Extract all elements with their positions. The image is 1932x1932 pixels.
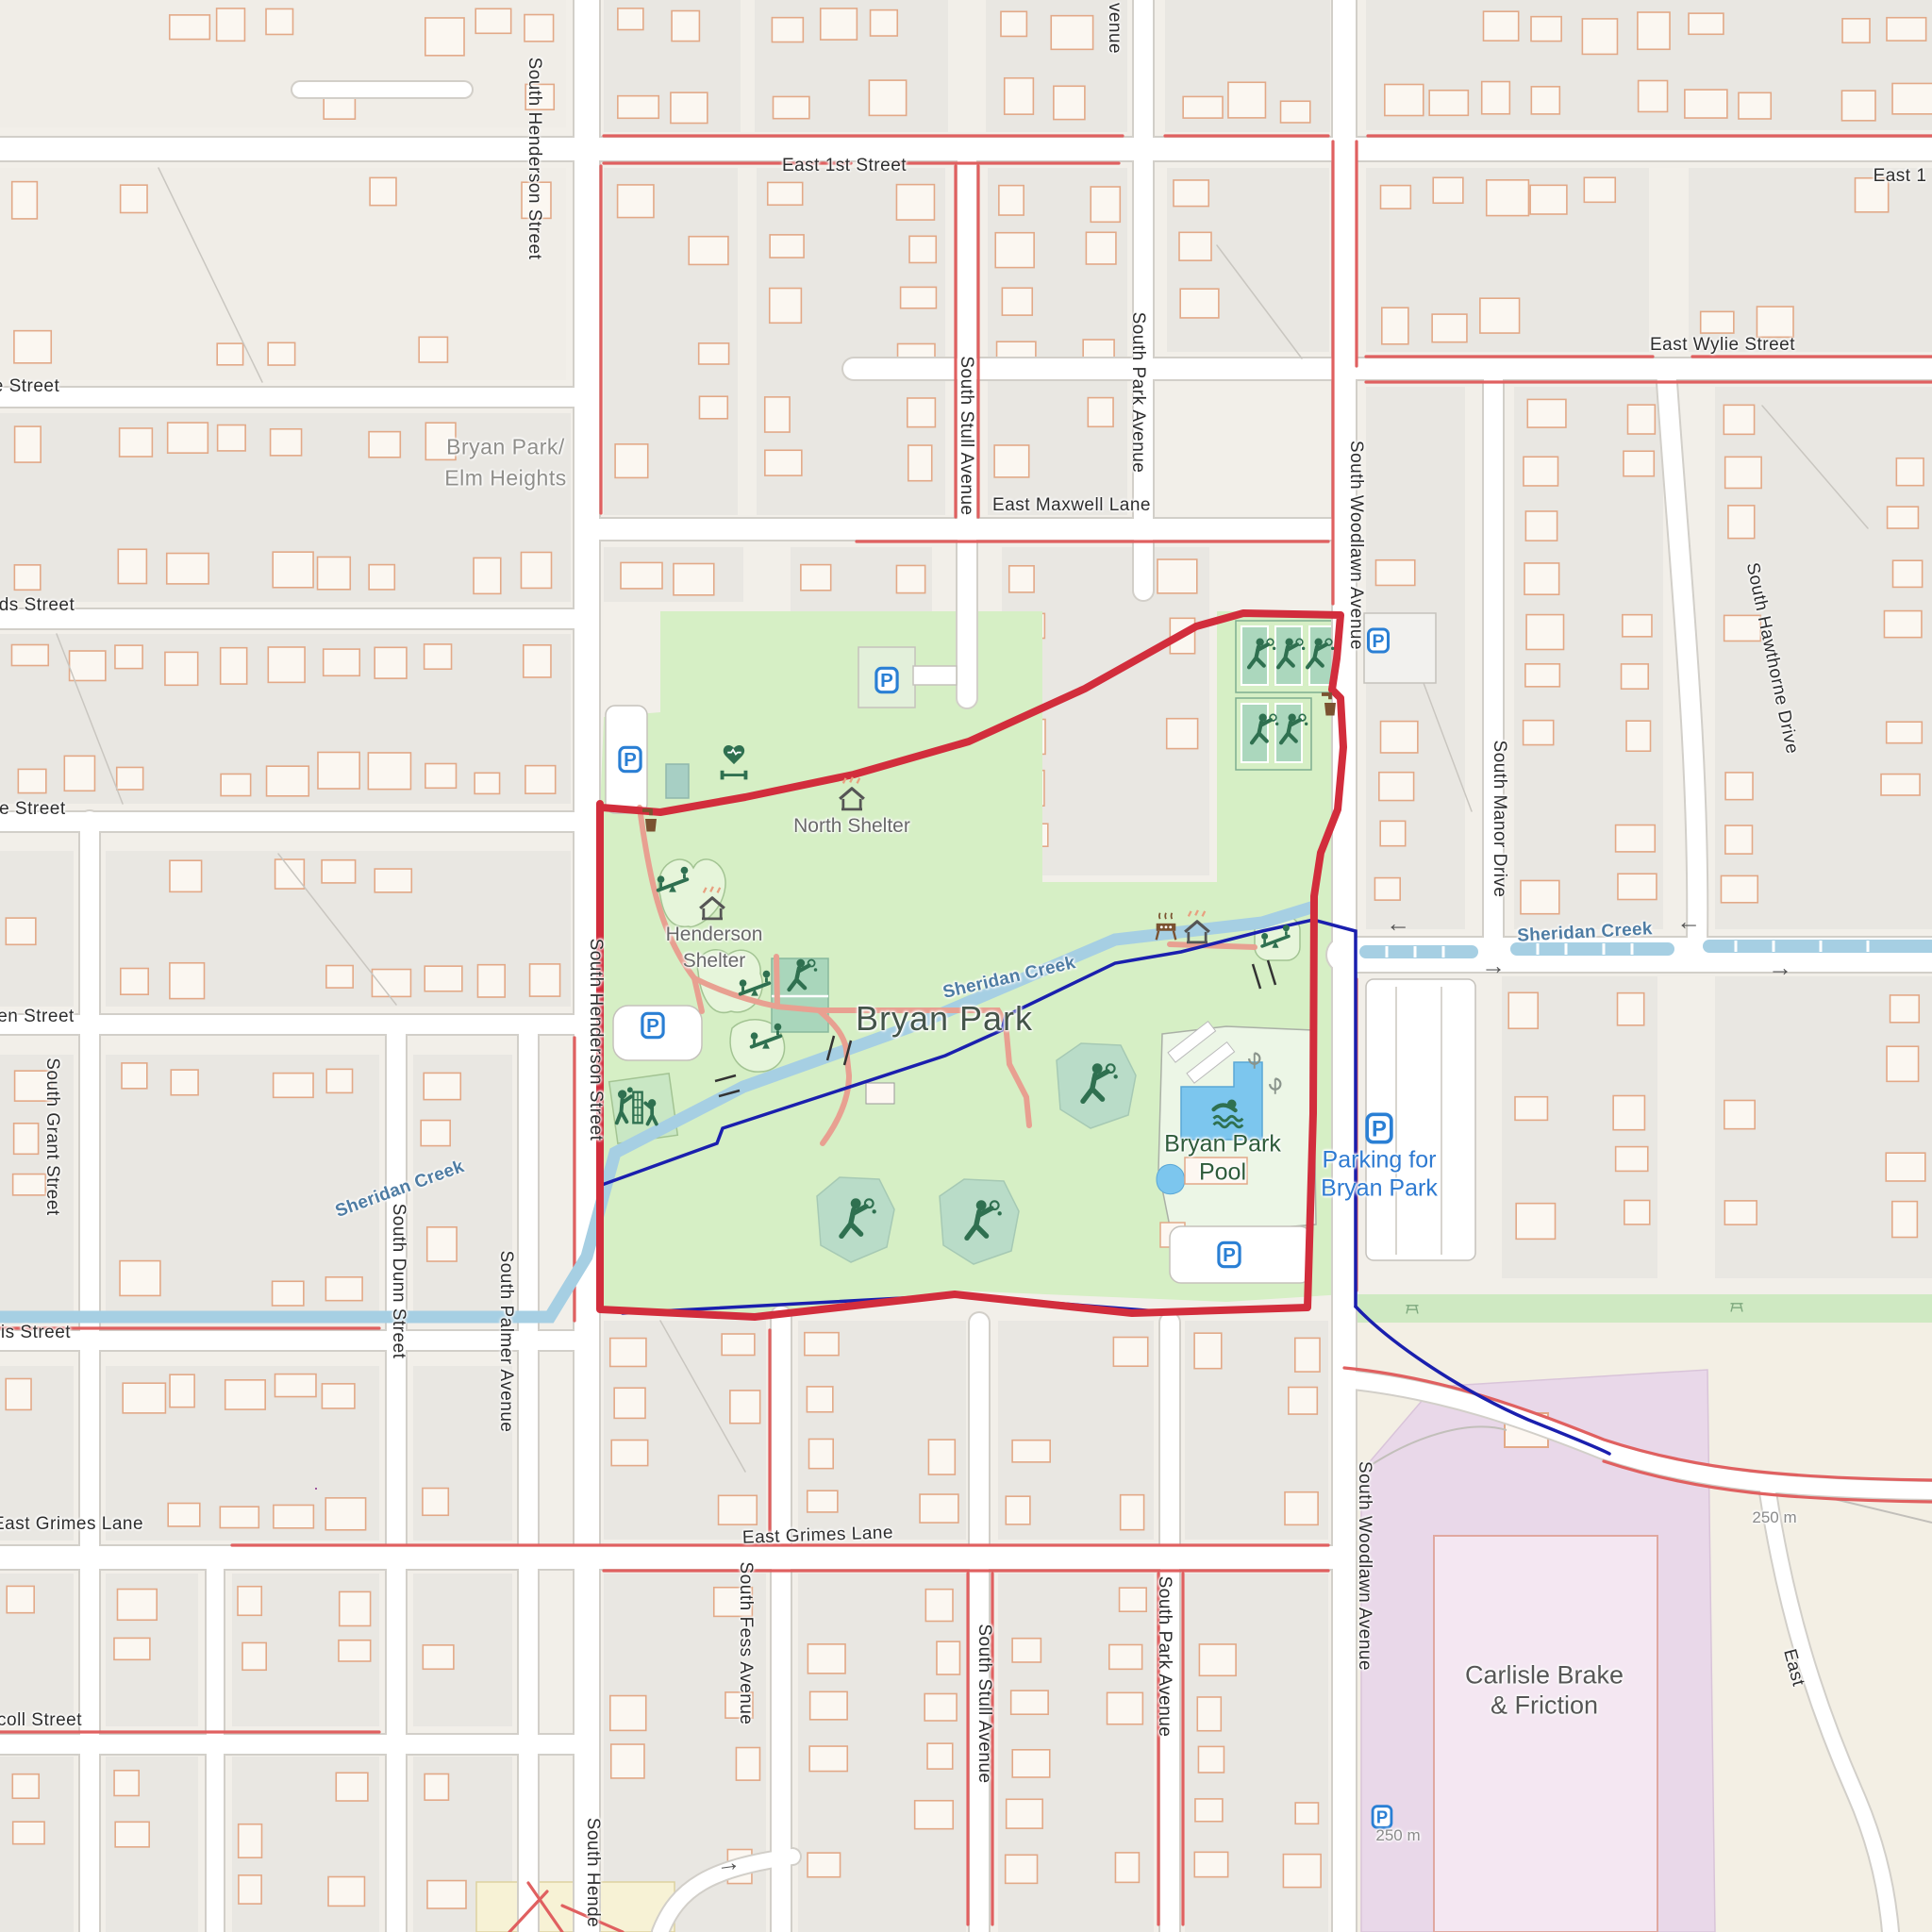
svg-text:P: P — [646, 1015, 659, 1037]
toddler-pool — [1157, 1164, 1185, 1193]
parking-icon: P — [642, 1013, 663, 1037]
green-strip — [1344, 1294, 1932, 1323]
parking-icon: P — [1219, 1242, 1240, 1266]
map-canvas[interactable]: PPPPPPP South Henderson StreetSouth Hend… — [0, 0, 1932, 1932]
parking-icon: P — [1373, 1807, 1391, 1828]
svg-text:P: P — [624, 749, 637, 771]
court-small — [666, 764, 689, 798]
poi-dot — [315, 1488, 317, 1490]
parking-icon: P — [1367, 1114, 1391, 1141]
map-geometry: PPPPPPP — [0, 0, 1932, 1932]
svg-text:P: P — [1372, 631, 1384, 652]
svg-text:P: P — [1223, 1244, 1236, 1266]
path-slab — [866, 1083, 894, 1104]
parking-icon: P — [620, 747, 641, 771]
svg-text:P: P — [1376, 1807, 1388, 1826]
parking-icon: P — [876, 668, 897, 691]
parking-icon: P — [1369, 629, 1389, 652]
industrial-building — [1434, 1536, 1657, 1932]
svg-text:P: P — [1372, 1116, 1387, 1141]
svg-text:P: P — [880, 670, 893, 691]
